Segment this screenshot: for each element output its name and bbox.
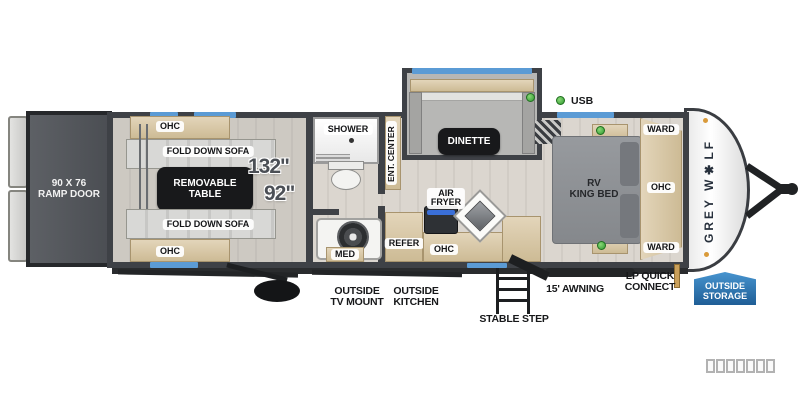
- glyph-box: [766, 359, 775, 373]
- glyph-box: [756, 359, 765, 373]
- shower-label: SHOWER: [324, 124, 373, 135]
- awning-label: 15' AWNING: [546, 284, 604, 295]
- ohc-garage-bottom-label: OHC: [156, 246, 184, 257]
- dimension-92: 92": [264, 182, 294, 206]
- outside-tv-mount-label: OUTSIDE TV MOUNT: [330, 286, 383, 309]
- refer-label: REFER: [385, 238, 424, 249]
- hitch-icon: [744, 158, 798, 224]
- bed-label: RV KING BED: [570, 178, 619, 200]
- brand-logo: GREY W✱LF: [702, 132, 730, 250]
- shower-drain-icon: [349, 138, 354, 143]
- ohc-bedroom-label: OHC: [647, 182, 675, 193]
- outside-kitchen-label: OUTSIDE KITCHEN: [393, 286, 438, 309]
- window: [412, 68, 532, 74]
- dinette-label: DINETTE: [438, 128, 500, 155]
- glyph-box: [746, 359, 755, 373]
- wheel-icon: [254, 280, 300, 302]
- glyph-box: [706, 359, 715, 373]
- usb-indicator-icon: [556, 96, 565, 105]
- bathroom-wall: [378, 112, 385, 194]
- pillow: [620, 194, 639, 238]
- glyph-box: [716, 359, 725, 373]
- sofa-bottom-label: FOLD DOWN SOFA: [163, 219, 254, 230]
- window: [557, 112, 614, 118]
- marker-light-icon: [704, 252, 709, 257]
- med-label: MED: [331, 249, 359, 260]
- stable-step-label: STABLE STEP: [479, 314, 548, 325]
- bathroom-wall: [313, 209, 339, 215]
- dinette-seatback: [410, 79, 534, 92]
- floorplan-canvas: GREY W✱LF 90 X 76 RAMP DOOR OHC FOLD DOW…: [0, 0, 800, 400]
- ohc-kitchen-label: OHC: [430, 244, 458, 255]
- pillow: [620, 142, 639, 186]
- refrigerator: [385, 212, 423, 262]
- usb-indicator-icon: [597, 241, 606, 250]
- kitchen-counter: [502, 216, 541, 262]
- usb-label: USB: [571, 95, 593, 107]
- usb-indicator-icon: [596, 126, 605, 135]
- cooktop-burners: [427, 210, 455, 215]
- glyph-box-row: [706, 359, 775, 373]
- usb-indicator-icon: [526, 93, 535, 102]
- ramp-door: 90 X 76 RAMP DOOR: [26, 111, 112, 267]
- ent-center-label: ENT. CENTER: [386, 121, 397, 185]
- lp-quick-connect-label: LP QUICK CONNECT: [625, 271, 676, 294]
- removable-table: REMOVABLE TABLE: [157, 167, 253, 211]
- dinette-cushion: [412, 92, 532, 101]
- toilet-icon: [331, 169, 361, 190]
- ward-bottom-label: WARD: [643, 242, 679, 253]
- ohc-garage-top-label: OHC: [156, 121, 184, 132]
- awning-roll: [545, 268, 635, 277]
- dimension-132: 132": [248, 155, 289, 179]
- ramp-door-label: 90 X 76 RAMP DOOR: [38, 178, 100, 201]
- glyph-box: [736, 359, 745, 373]
- sofa-top-label: FOLD DOWN SOFA: [163, 146, 254, 157]
- ladder-icon: [496, 268, 530, 314]
- ramp-pad: [8, 190, 28, 262]
- bathroom-wall: [306, 112, 313, 268]
- ramp-pad: [8, 116, 28, 188]
- ward-top-label: WARD: [643, 124, 679, 135]
- dinette-bench: [409, 92, 422, 154]
- marker-light-icon: [703, 118, 708, 123]
- air-fryer-label: AIR FRYER: [427, 188, 465, 209]
- outside-storage-badge: OUTSIDE STORAGE: [694, 272, 756, 305]
- glyph-box: [726, 359, 735, 373]
